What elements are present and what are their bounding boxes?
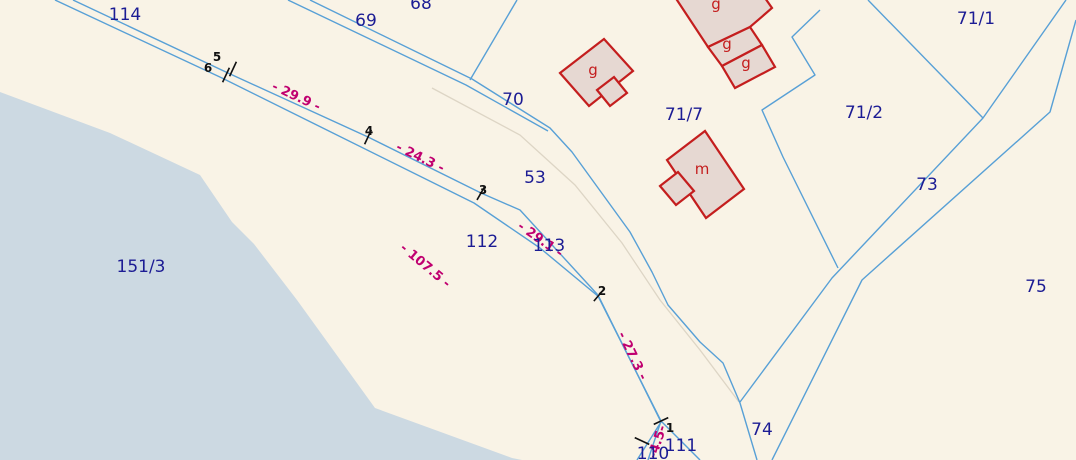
parcel-label-71-1: 71/1 xyxy=(957,9,995,29)
survey-point-1: 1 xyxy=(666,421,674,435)
parcel-label-114: 114 xyxy=(109,5,141,25)
road-73-line-right xyxy=(772,20,1076,460)
parcel-label-113: 113 xyxy=(533,236,565,256)
distance-label: - 29.9 - xyxy=(269,79,322,115)
survey-point-4: 4 xyxy=(365,124,373,138)
building-label: g xyxy=(722,35,732,53)
parcel-label-75: 75 xyxy=(1025,277,1047,297)
parcel-label-111: 111 xyxy=(665,436,697,456)
parcel-label-73: 73 xyxy=(916,175,938,195)
building-label: g xyxy=(711,0,721,13)
road-69-line-b xyxy=(288,0,548,131)
cadastral-map[interactable]: ggggm- 29.9 -- 24.3 -- 29.1 -- 107.5 -- … xyxy=(0,0,1076,460)
survey-point-3: 3 xyxy=(479,183,487,197)
distance-label: - 27.3 - xyxy=(614,329,650,382)
parcel-label-71-2: 71/2 xyxy=(845,103,883,123)
parcel-label-151-3: 151/3 xyxy=(117,257,166,277)
building-label: g xyxy=(588,61,598,79)
parcel-label-112: 112 xyxy=(466,232,498,252)
parcel-label-53: 53 xyxy=(524,168,546,188)
distance-label: - 107.5 - xyxy=(397,241,453,292)
map-viewport: ggggm- 29.9 -- 24.3 -- 29.1 -- 107.5 -- … xyxy=(0,0,1076,460)
building-label: m xyxy=(695,160,710,178)
parcel-label-69: 69 xyxy=(355,11,377,31)
parcel-label-68: 68 xyxy=(410,0,432,14)
parcel-label-110: 110 xyxy=(637,444,669,460)
parcel-label-71-7: 71/7 xyxy=(665,105,703,125)
building-label: g xyxy=(741,54,751,72)
parcel-71-7-zigzag-border xyxy=(762,10,838,268)
survey-point-6: 6 xyxy=(204,61,212,75)
distance-label: - 24.3 - xyxy=(393,140,446,176)
parcel-label-70: 70 xyxy=(502,90,524,110)
survey-tick xyxy=(230,62,237,77)
survey-point-2: 2 xyxy=(598,284,606,298)
survey-point-5: 5 xyxy=(213,50,221,64)
parcel-70-border xyxy=(470,0,517,80)
parcel-label-74: 74 xyxy=(751,420,773,440)
road-73-line-left xyxy=(740,0,1066,402)
